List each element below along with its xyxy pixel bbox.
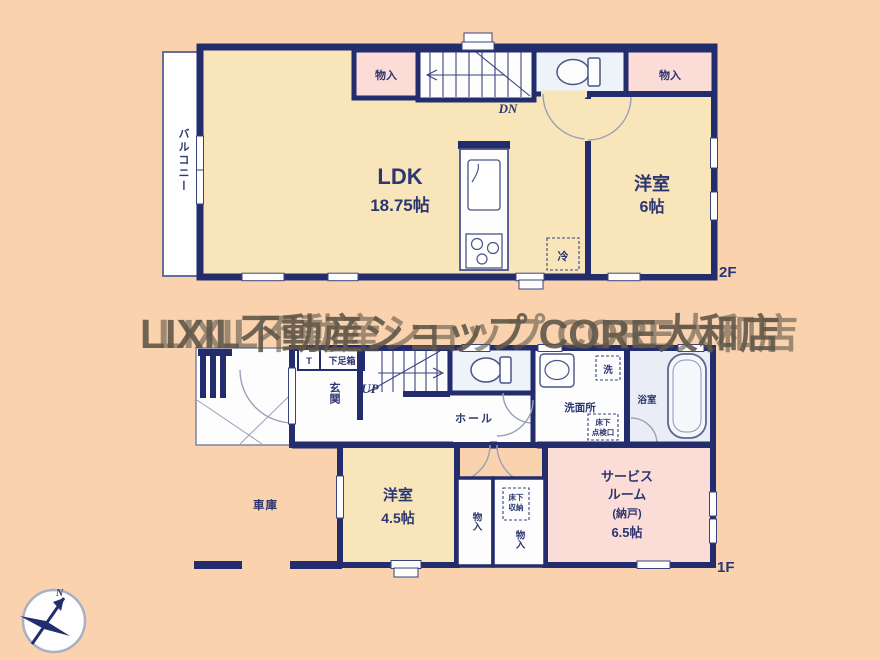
- watermark-text-echo: LIXIL不動産ショップ CORE大和店: [158, 300, 798, 360]
- washroom-label: 洗面所: [564, 401, 596, 414]
- ldk-size: 18.75帖: [370, 195, 430, 215]
- floor-storage-line1: 床下: [509, 492, 524, 502]
- floor-1f-label: 1F: [717, 559, 735, 576]
- kitchen-stove-icon: [466, 234, 502, 268]
- compass: N: [20, 588, 85, 652]
- room-1f-bedroom-size: 4.5帖: [381, 510, 414, 526]
- compass-north-label: N: [55, 588, 64, 599]
- toilet-1f-fixture-icon: [500, 357, 511, 383]
- washer-label: 洗: [603, 364, 613, 376]
- kitchen-sink-icon: [468, 160, 500, 210]
- entrance-door: [289, 368, 296, 424]
- toilet-2f-fixture-icon: [588, 58, 600, 86]
- room-2f-bedroom-name: 洋室: [634, 173, 670, 194]
- stairs-up-label: UP: [361, 381, 379, 396]
- garage: 車庫: [194, 498, 342, 569]
- entrance-label: 玄関: [328, 381, 341, 405]
- floor-1f: T 下足箱 玄関 UP ホール: [194, 345, 735, 578]
- room-1f-bedroom-name: 洋室: [383, 486, 413, 504]
- closet-2f-left-label: 物入: [375, 68, 397, 82]
- closet-1f-b-label: 物入: [514, 529, 527, 550]
- closet-1f-b: 床下 収納 物入: [493, 478, 545, 566]
- stairs-dn-label: DN: [498, 101, 518, 116]
- window: [337, 476, 344, 518]
- closet-1f-a-label: 物入: [471, 511, 484, 532]
- floor-storage-line2: 収納: [509, 502, 524, 512]
- service-room-line4: 6.5帖: [611, 525, 642, 540]
- service-room-line2: ルーム: [608, 487, 647, 502]
- floorplan-page: バルコニー 物入 DN 物入 洋: [0, 0, 880, 660]
- balcony-label: バルコニー: [177, 128, 190, 193]
- floor-2f-label: 2F: [719, 264, 737, 281]
- door-gap: [541, 91, 587, 98]
- kitchen-counter: [458, 141, 510, 270]
- hall-label: ホール: [455, 412, 494, 425]
- floor-hatch-line1: 床下: [596, 417, 611, 427]
- fridge-label: 冷: [558, 249, 569, 263]
- service-room-line1: サービス: [601, 469, 653, 484]
- service-room: [545, 445, 713, 565]
- room-1f-bedroom: [340, 445, 457, 565]
- service-room-line3: (納戸): [612, 506, 642, 520]
- garage-label: 車庫: [253, 498, 278, 512]
- floor-hatch-line2: 点検口: [592, 427, 615, 437]
- floor-2f: バルコニー 物入 DN 物入 洋: [163, 33, 737, 289]
- closet-1f-a: 物入: [457, 478, 493, 566]
- bathroom-label: 浴室: [637, 394, 657, 406]
- door-gap: [585, 99, 592, 141]
- bathroom: 浴室: [627, 348, 713, 445]
- ldk-name: LDK: [377, 164, 422, 189]
- toilet-2f: [534, 50, 626, 94]
- wall: [490, 442, 497, 449]
- gate-louver-icon: [200, 356, 206, 398]
- room-2f-bedroom-size: 6帖: [640, 197, 665, 216]
- closet-2f-right-label: 物入: [659, 68, 681, 82]
